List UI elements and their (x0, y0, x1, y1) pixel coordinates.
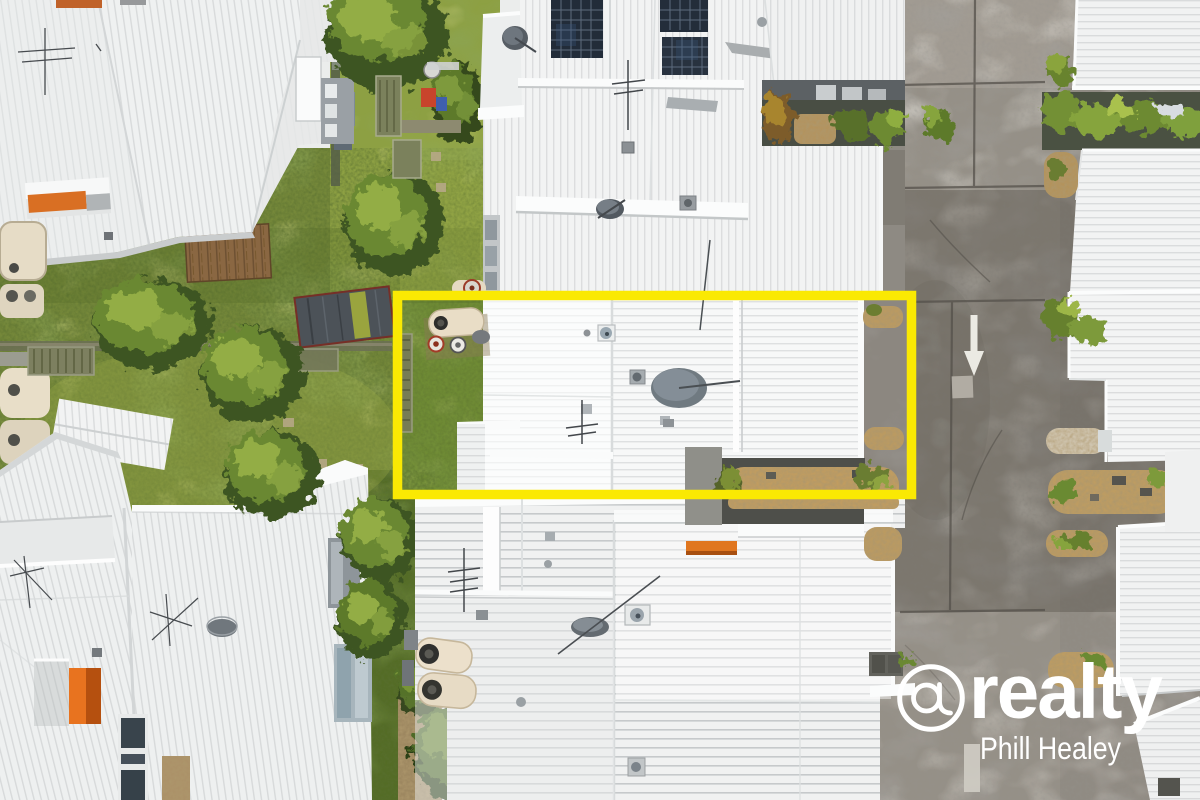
svg-text:realty: realty (969, 649, 1163, 735)
svg-text:Phill Healey: Phill Healey (980, 730, 1121, 766)
